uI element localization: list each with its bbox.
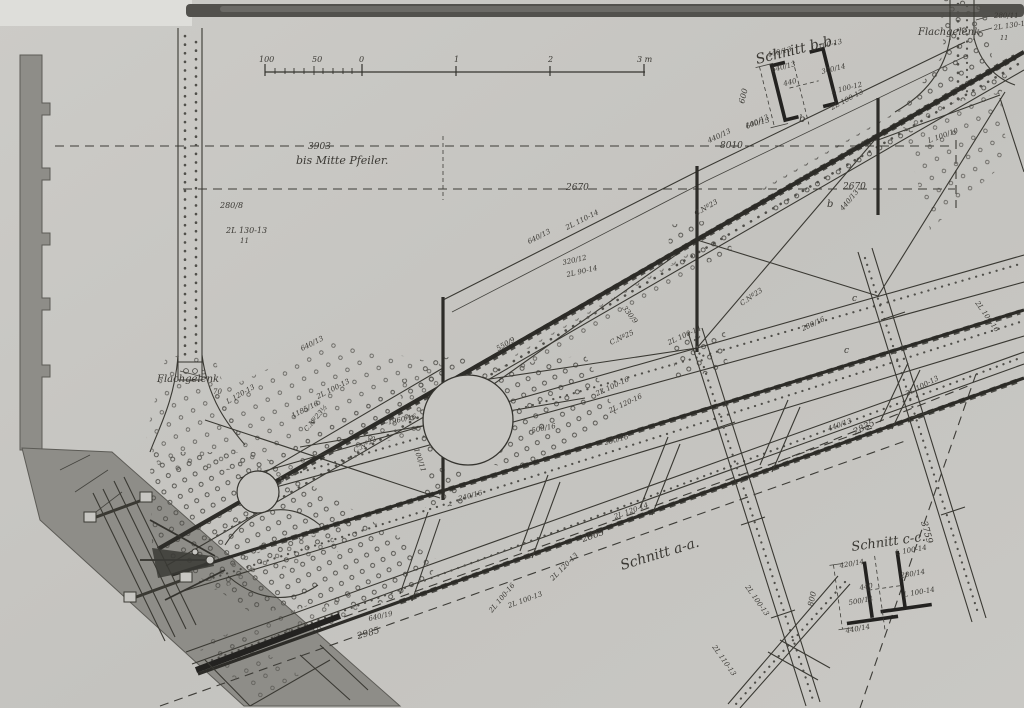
dim-label: 70 — [213, 388, 222, 396]
dim-8010: 8010 — [720, 141, 743, 151]
member-label: 2L 130-13 — [225, 226, 267, 235]
scale-50: 50 — [312, 55, 322, 64]
dim-3903: 3903 — [308, 142, 331, 152]
member-label: 11 — [240, 237, 249, 245]
note-bis-mitte-pfeiler: bis Mitte Pfeiler. — [296, 154, 388, 167]
section-mark: c — [852, 294, 857, 304]
scan-top-band-highlight — [220, 6, 980, 12]
note-flachgelenk-left: Flachgelenk — [156, 374, 219, 385]
scale-3m: 3 m — [637, 55, 653, 64]
scale-2: 2 — [547, 55, 553, 64]
web-hole-small — [237, 471, 279, 513]
section-mark: b — [799, 114, 805, 125]
member-label: 280/11 — [993, 12, 1019, 20]
note-flachgelenk-top: Flachgelenk — [917, 27, 980, 38]
scanned-drawing-page: 3903bis Mitte Pfeiler.8010267026702865Sc… — [0, 0, 1024, 708]
scale-1: 1 — [454, 55, 459, 64]
web-hole-large — [423, 375, 513, 465]
scale-100: 100 — [259, 55, 274, 64]
section-mark: c — [844, 346, 849, 356]
member-label: 280/8 — [219, 201, 243, 210]
member-label: 11 — [1000, 34, 1008, 42]
truss-drawing-svg: 3903bis Mitte Pfeiler.8010267026702865Sc… — [0, 0, 1024, 708]
scan-light-corner — [0, 0, 192, 26]
scale-0: 0 — [359, 55, 364, 64]
dim-2670-a: 2670 — [565, 183, 589, 193]
section-mark: b — [827, 199, 833, 210]
